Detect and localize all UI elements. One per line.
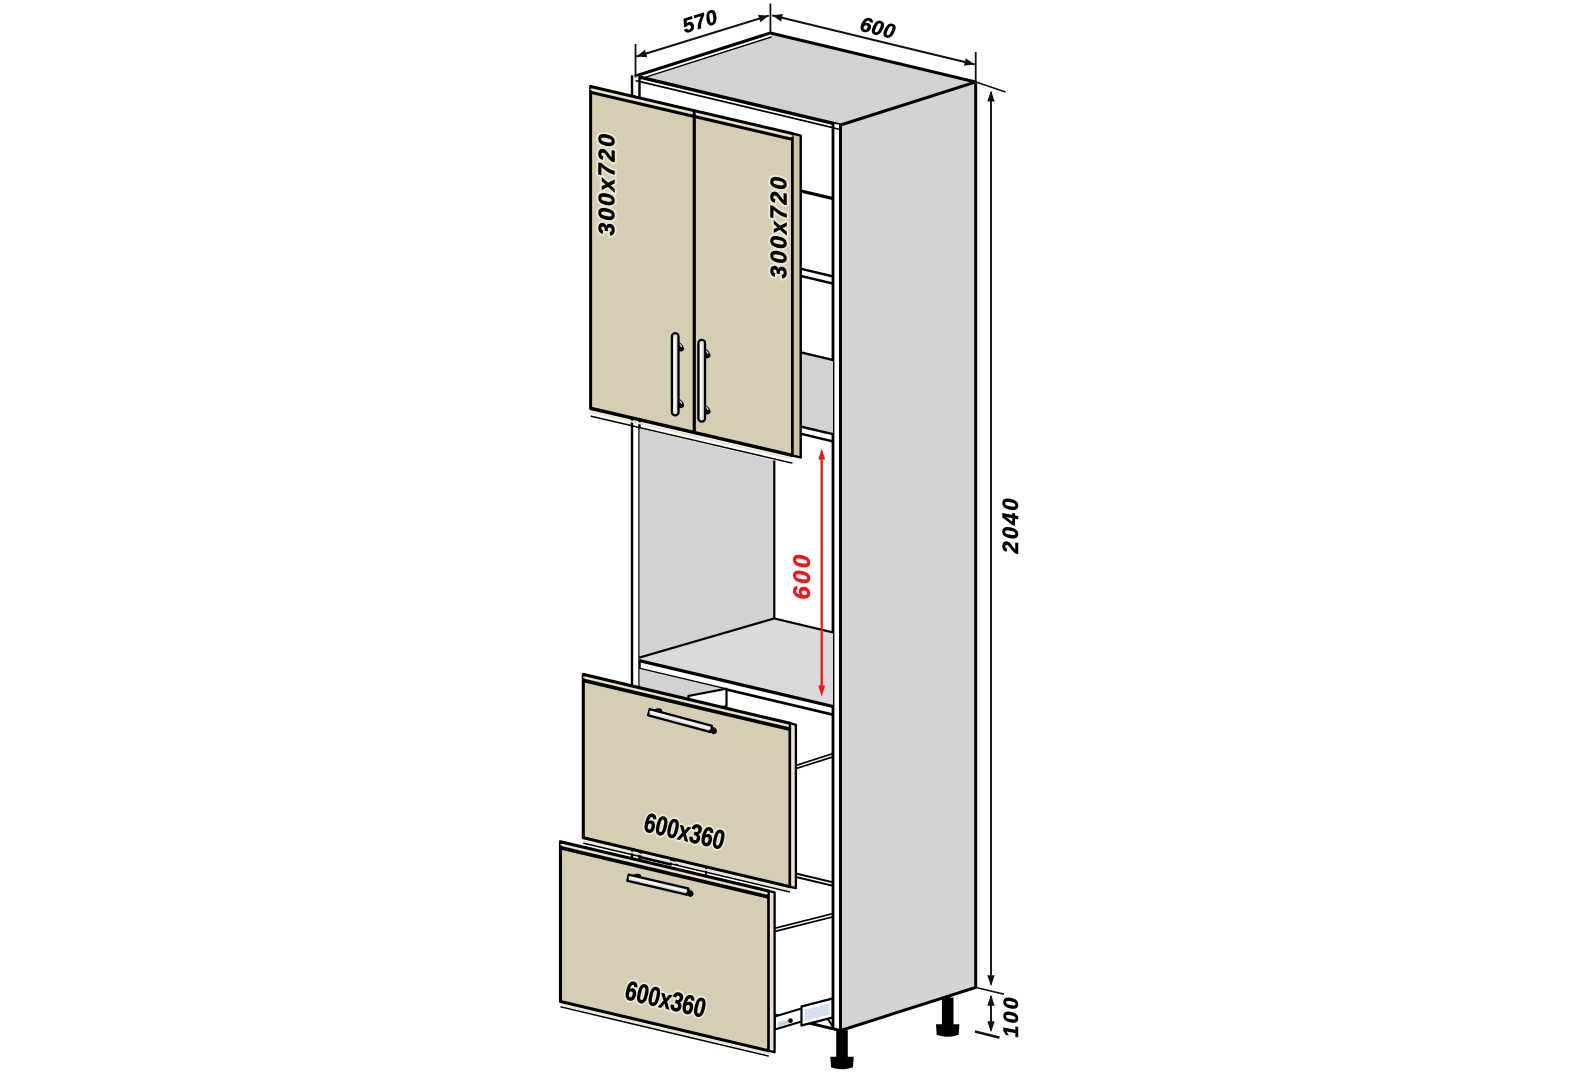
svg-text:2040: 2040	[998, 497, 1023, 555]
svg-text:100: 100	[999, 996, 1023, 1038]
svg-text:300x720: 300x720	[593, 132, 619, 236]
svg-text:600: 600	[789, 552, 816, 599]
svg-text:300x720: 300x720	[765, 175, 791, 279]
